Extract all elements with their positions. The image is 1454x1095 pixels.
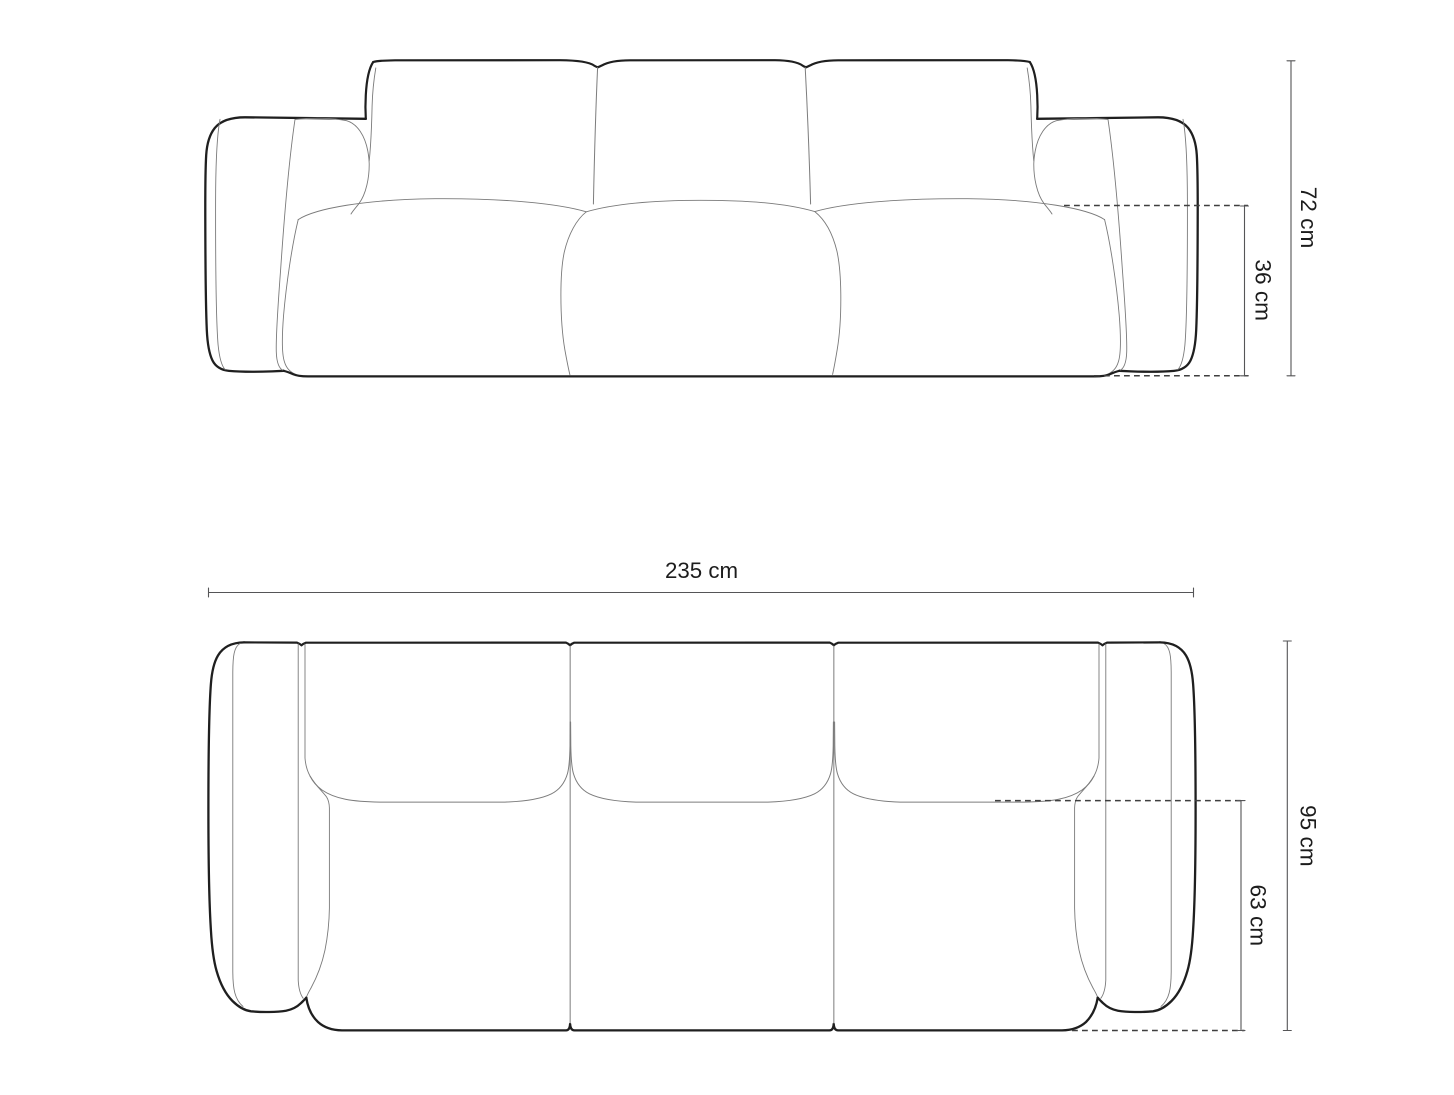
svg-text:63 cm: 63 cm bbox=[1246, 885, 1271, 947]
svg-text:95 cm: 95 cm bbox=[1296, 805, 1321, 867]
svg-text:72 cm: 72 cm bbox=[1296, 187, 1321, 249]
svg-text:235 cm: 235 cm bbox=[665, 558, 738, 583]
svg-text:36 cm: 36 cm bbox=[1251, 259, 1276, 321]
